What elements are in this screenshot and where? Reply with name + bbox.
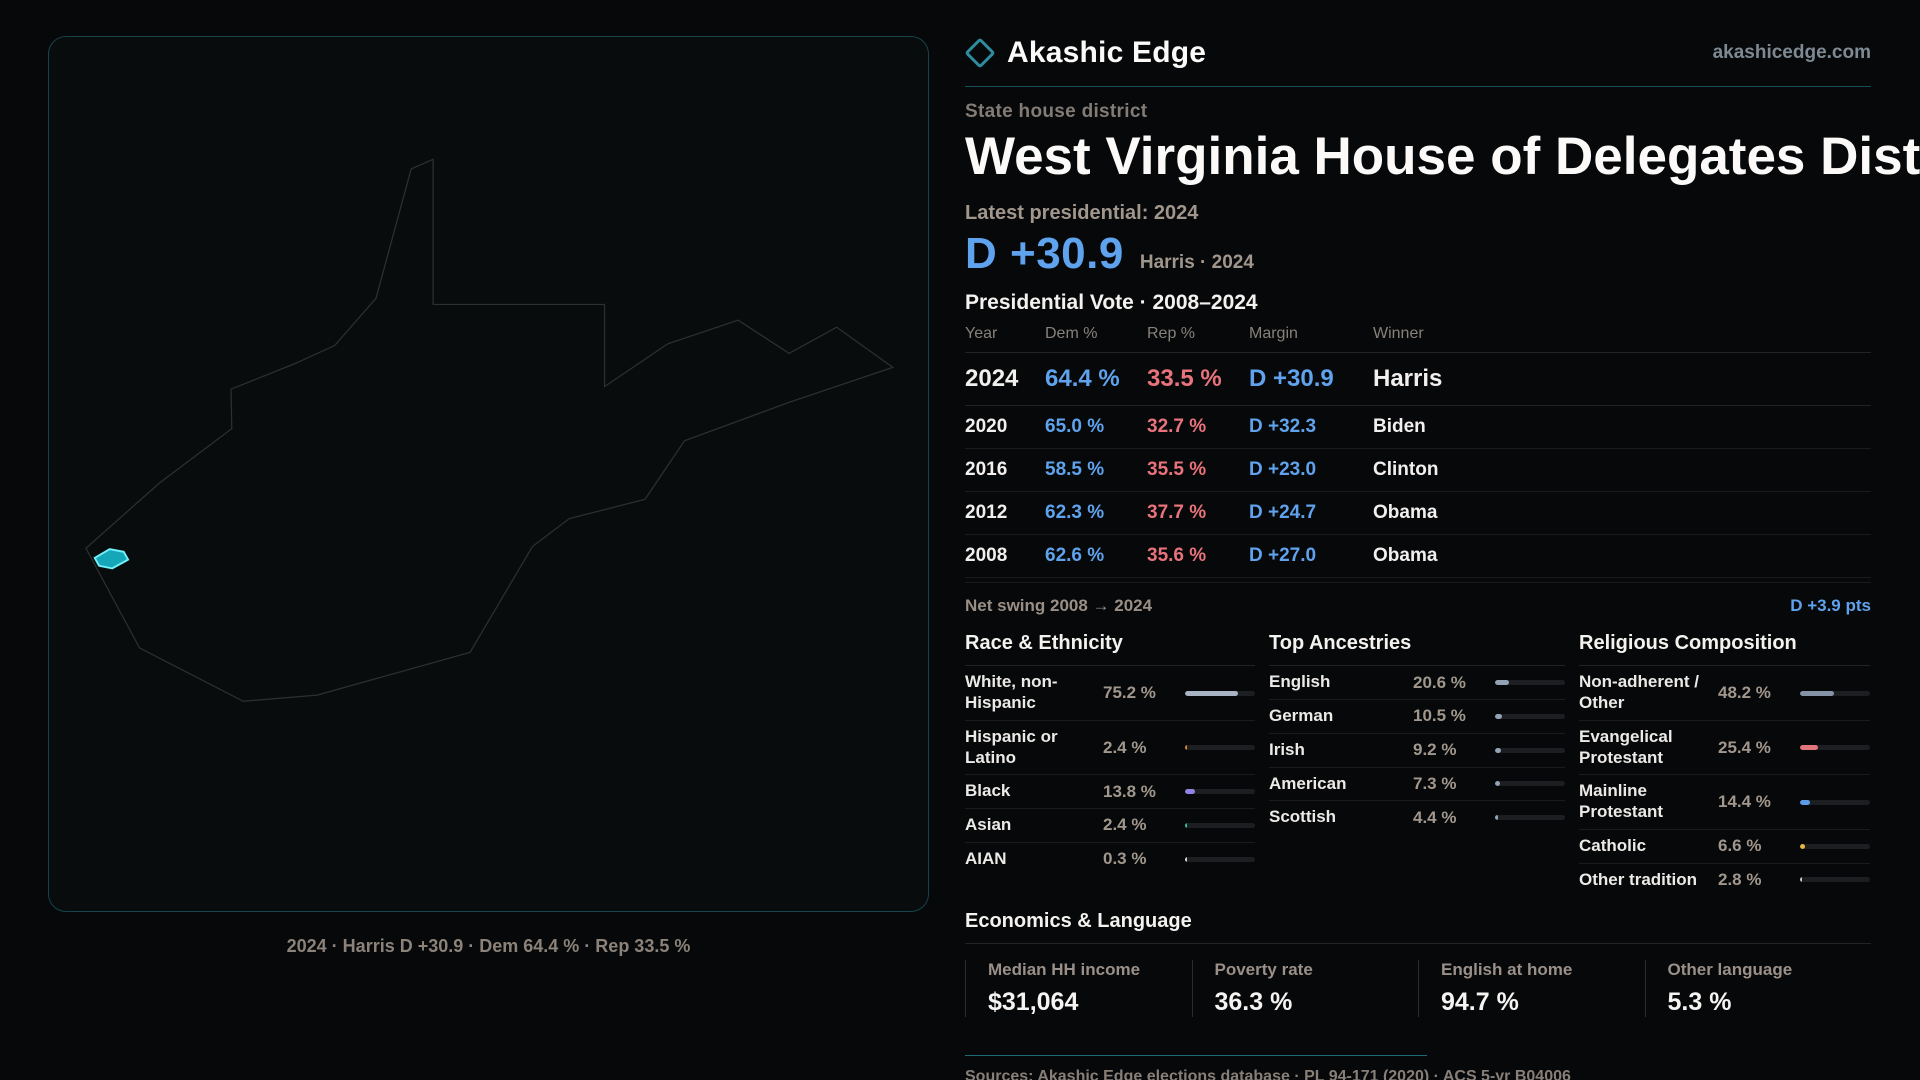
demo-row: American 7.3 % xyxy=(1269,768,1565,802)
demo-bar xyxy=(1800,877,1870,882)
demo-bar-fill xyxy=(1495,781,1500,786)
demo-label: Hispanic or Latino xyxy=(965,727,1093,768)
cell-margin: D +27.0 xyxy=(1249,545,1373,567)
table-row: 2020 65.0 % 32.7 % D +32.3 Biden xyxy=(965,406,1871,449)
stat-value: 36.3 % xyxy=(1215,988,1419,1017)
demo-value: 13.8 % xyxy=(1103,782,1175,802)
demo-bar xyxy=(1495,748,1565,753)
demo-bar-fill xyxy=(1495,714,1502,719)
demo-bar-fill xyxy=(1800,745,1818,750)
stat-label: Poverty rate xyxy=(1215,960,1419,980)
demo-label: German xyxy=(1269,706,1403,727)
demo-bar-fill xyxy=(1185,857,1187,862)
table-row: 2016 58.5 % 35.5 % D +23.0 Clinton xyxy=(965,449,1871,492)
demo-row: Other tradition 2.8 % xyxy=(1579,864,1870,897)
header-divider xyxy=(965,86,1871,87)
demo-value: 75.2 % xyxy=(1103,683,1175,703)
district-type-kicker: State house district xyxy=(965,101,1871,123)
cell-dem: 62.6 % xyxy=(1045,545,1147,567)
demo-bar-fill xyxy=(1800,877,1802,882)
demo-row: AIAN 0.3 % xyxy=(965,843,1255,876)
demo-bar xyxy=(1495,714,1565,719)
demo-value: 2.4 % xyxy=(1103,738,1175,758)
cell-winner: Biden xyxy=(1373,416,1871,438)
map-caption: 2024 · Harris D +30.9 · Dem 64.4 % · Rep… xyxy=(48,936,929,957)
stat-cell: Median HH income $31,064 xyxy=(965,960,1192,1017)
ancestry-title: Top Ancestries xyxy=(1269,632,1565,666)
demo-bar xyxy=(1185,745,1255,750)
demo-value: 9.2 % xyxy=(1413,740,1485,760)
cell-dem: 58.5 % xyxy=(1045,459,1147,481)
demo-row: Mainline Protestant 14.4 % xyxy=(1579,775,1870,829)
table-row: 2012 62.3 % 37.7 % D +24.7 Obama xyxy=(965,492,1871,535)
demo-bar-fill xyxy=(1185,745,1187,750)
cell-margin: D +23.0 xyxy=(1249,459,1373,481)
demo-bar xyxy=(1185,691,1255,696)
state-outline xyxy=(86,159,893,701)
district-report: Akashic Edge akashicedge.com State house… xyxy=(965,28,1871,1080)
religion-column: Religious Composition Non-adherent / Oth… xyxy=(1579,632,1870,896)
demographics-section: Race & Ethnicity White, non-Hispanic 75.… xyxy=(965,632,1871,896)
header-bar: Akashic Edge akashicedge.com xyxy=(965,28,1871,78)
demo-bar xyxy=(1800,844,1870,849)
cell-winner: Obama xyxy=(1373,545,1871,567)
demo-row: Catholic 6.6 % xyxy=(1579,830,1870,864)
demo-bar xyxy=(1185,857,1255,862)
col-year: Year xyxy=(965,325,1045,343)
demo-bar-fill xyxy=(1185,691,1238,696)
demo-value: 2.8 % xyxy=(1718,870,1790,890)
cell-margin: D +32.3 xyxy=(1249,416,1373,438)
demo-row: Evangelical Protestant 25.4 % xyxy=(1579,721,1870,775)
demo-bar xyxy=(1185,823,1255,828)
demo-label: AIAN xyxy=(965,849,1093,870)
net-swing-row: Net swing 2008 → 2024 D +3.9 pts xyxy=(965,582,1871,616)
demo-row: English 20.6 % xyxy=(1269,666,1565,700)
demo-bar-fill xyxy=(1185,789,1195,794)
demo-bar xyxy=(1495,781,1565,786)
race-ethnicity-column: Race & Ethnicity White, non-Hispanic 75.… xyxy=(965,632,1255,896)
page-title: West Virginia House of Delegates Distric… xyxy=(965,127,1871,186)
pres-table-title: Presidential Vote · 2008–2024 xyxy=(965,291,1871,315)
demo-value: 2.4 % xyxy=(1103,815,1175,835)
demo-bar xyxy=(1495,680,1565,685)
stat-label: English at home xyxy=(1441,960,1645,980)
demo-bar-fill xyxy=(1800,691,1834,696)
demo-label: Mainline Protestant xyxy=(1579,781,1708,822)
latest-margin-row: D +30.9 Harris · 2024 xyxy=(965,229,1871,279)
demo-value: 48.2 % xyxy=(1718,683,1790,703)
stat-label: Median HH income xyxy=(988,960,1192,980)
brand: Akashic Edge xyxy=(965,36,1206,70)
demo-bar-fill xyxy=(1495,748,1501,753)
demo-bar xyxy=(1185,789,1255,794)
presidential-vote-table: Year Dem % Rep % Margin Winner 2024 64.4… xyxy=(965,319,1871,578)
district-map-panel xyxy=(48,36,929,912)
table-row: 2024 64.4 % 33.5 % D +30.9 Harris xyxy=(965,353,1871,406)
col-margin: Margin xyxy=(1249,325,1373,343)
cell-year: 2012 xyxy=(965,502,1045,524)
demo-bar-fill xyxy=(1495,815,1498,820)
demo-bar-fill xyxy=(1800,844,1805,849)
demo-row: Non-adherent / Other 48.2 % xyxy=(1579,666,1870,720)
demo-row: German 10.5 % xyxy=(1269,700,1565,734)
economics-title: Economics & Language xyxy=(965,910,1871,944)
west-virginia-map xyxy=(49,37,928,911)
demo-label: Black xyxy=(965,781,1093,802)
footer-divider xyxy=(965,1055,1427,1056)
demo-row: Hispanic or Latino 2.4 % xyxy=(965,721,1255,775)
demo-value: 0.3 % xyxy=(1103,849,1175,869)
table-row: 2008 62.6 % 35.6 % D +27.0 Obama xyxy=(965,535,1871,578)
demo-label: Irish xyxy=(1269,740,1403,761)
stat-value: 94.7 % xyxy=(1441,988,1645,1017)
cell-rep: 35.5 % xyxy=(1147,459,1249,481)
demo-bar-fill xyxy=(1185,823,1187,828)
demo-bar xyxy=(1495,815,1565,820)
latest-presidential-label: Latest presidential: 2024 xyxy=(965,202,1871,225)
cell-margin: D +30.9 xyxy=(1249,365,1373,393)
demo-bar-fill xyxy=(1800,800,1810,805)
demo-value: 6.6 % xyxy=(1718,836,1790,856)
demo-label: Non-adherent / Other xyxy=(1579,672,1708,713)
brand-domain-link[interactable]: akashicedge.com xyxy=(1713,42,1871,64)
demo-row: Scottish 4.4 % xyxy=(1269,801,1565,834)
cell-year: 2020 xyxy=(965,416,1045,438)
demo-label: Catholic xyxy=(1579,836,1708,857)
cell-winner: Harris xyxy=(1373,365,1871,393)
cell-year: 2016 xyxy=(965,459,1045,481)
demo-label: American xyxy=(1269,774,1403,795)
cell-margin: D +24.7 xyxy=(1249,502,1373,524)
demo-label: Other tradition xyxy=(1579,870,1708,891)
demo-bar xyxy=(1800,691,1870,696)
demo-value: 14.4 % xyxy=(1718,792,1790,812)
diamond-logo-icon xyxy=(964,37,995,68)
brand-name: Akashic Edge xyxy=(1007,36,1206,70)
cell-year: 2024 xyxy=(965,365,1045,393)
demo-label: Scottish xyxy=(1269,807,1403,828)
demo-row: Black 13.8 % xyxy=(965,775,1255,809)
ancestry-column: Top Ancestries English 20.6 % German 10.… xyxy=(1269,632,1565,896)
stat-value: 5.3 % xyxy=(1668,988,1872,1017)
stat-cell: English at home 94.7 % xyxy=(1418,960,1645,1017)
cell-winner: Clinton xyxy=(1373,459,1871,481)
demo-label: Asian xyxy=(965,815,1093,836)
demo-row: Asian 2.4 % xyxy=(965,809,1255,843)
demo-label: White, non-Hispanic xyxy=(965,672,1093,713)
footer: Sources: Akashic Edge elections database… xyxy=(965,1055,1871,1080)
demo-label: English xyxy=(1269,672,1403,693)
religion-title: Religious Composition xyxy=(1579,632,1870,666)
cell-winner: Obama xyxy=(1373,502,1871,524)
demo-bar-fill xyxy=(1495,680,1509,685)
demo-row: Irish 9.2 % xyxy=(1269,734,1565,768)
economics-section: Economics & Language Median HH income $3… xyxy=(965,910,1871,1017)
cell-dem: 64.4 % xyxy=(1045,365,1147,393)
cell-dem: 65.0 % xyxy=(1045,416,1147,438)
net-swing-value: D +3.9 pts xyxy=(1790,596,1871,616)
stat-cell: Poverty rate 36.3 % xyxy=(1192,960,1419,1017)
cell-dem: 62.3 % xyxy=(1045,502,1147,524)
cell-rep: 32.7 % xyxy=(1147,416,1249,438)
demo-value: 10.5 % xyxy=(1413,706,1485,726)
sources-line: Sources: Akashic Edge elections database… xyxy=(965,1068,1871,1080)
stat-cell: Other language 5.3 % xyxy=(1645,960,1872,1017)
demo-row: White, non-Hispanic 75.2 % xyxy=(965,666,1255,720)
table-header-row: Year Dem % Rep % Margin Winner xyxy=(965,319,1871,353)
race-ethnicity-title: Race & Ethnicity xyxy=(965,632,1255,666)
demo-value: 4.4 % xyxy=(1413,808,1485,828)
demo-value: 20.6 % xyxy=(1413,673,1485,693)
demo-value: 25.4 % xyxy=(1718,738,1790,758)
economics-stats: Median HH income $31,064 Poverty rate 36… xyxy=(965,960,1871,1017)
cell-rep: 35.6 % xyxy=(1147,545,1249,567)
col-rep: Rep % xyxy=(1147,325,1249,343)
stat-value: $31,064 xyxy=(988,988,1192,1017)
cell-year: 2008 xyxy=(965,545,1045,567)
demo-bar xyxy=(1800,800,1870,805)
cell-rep: 33.5 % xyxy=(1147,365,1249,393)
stat-label: Other language xyxy=(1668,960,1872,980)
demo-label: Evangelical Protestant xyxy=(1579,727,1708,768)
demo-bar xyxy=(1800,745,1870,750)
cell-rep: 37.7 % xyxy=(1147,502,1249,524)
col-winner: Winner xyxy=(1373,325,1871,343)
col-dem: Dem % xyxy=(1045,325,1147,343)
latest-margin-detail: Harris · 2024 xyxy=(1140,252,1254,274)
highlighted-district[interactable] xyxy=(95,549,128,568)
latest-margin-value: D +30.9 xyxy=(965,229,1124,279)
demo-value: 7.3 % xyxy=(1413,774,1485,794)
net-swing-label: Net swing 2008 → 2024 xyxy=(965,596,1152,616)
